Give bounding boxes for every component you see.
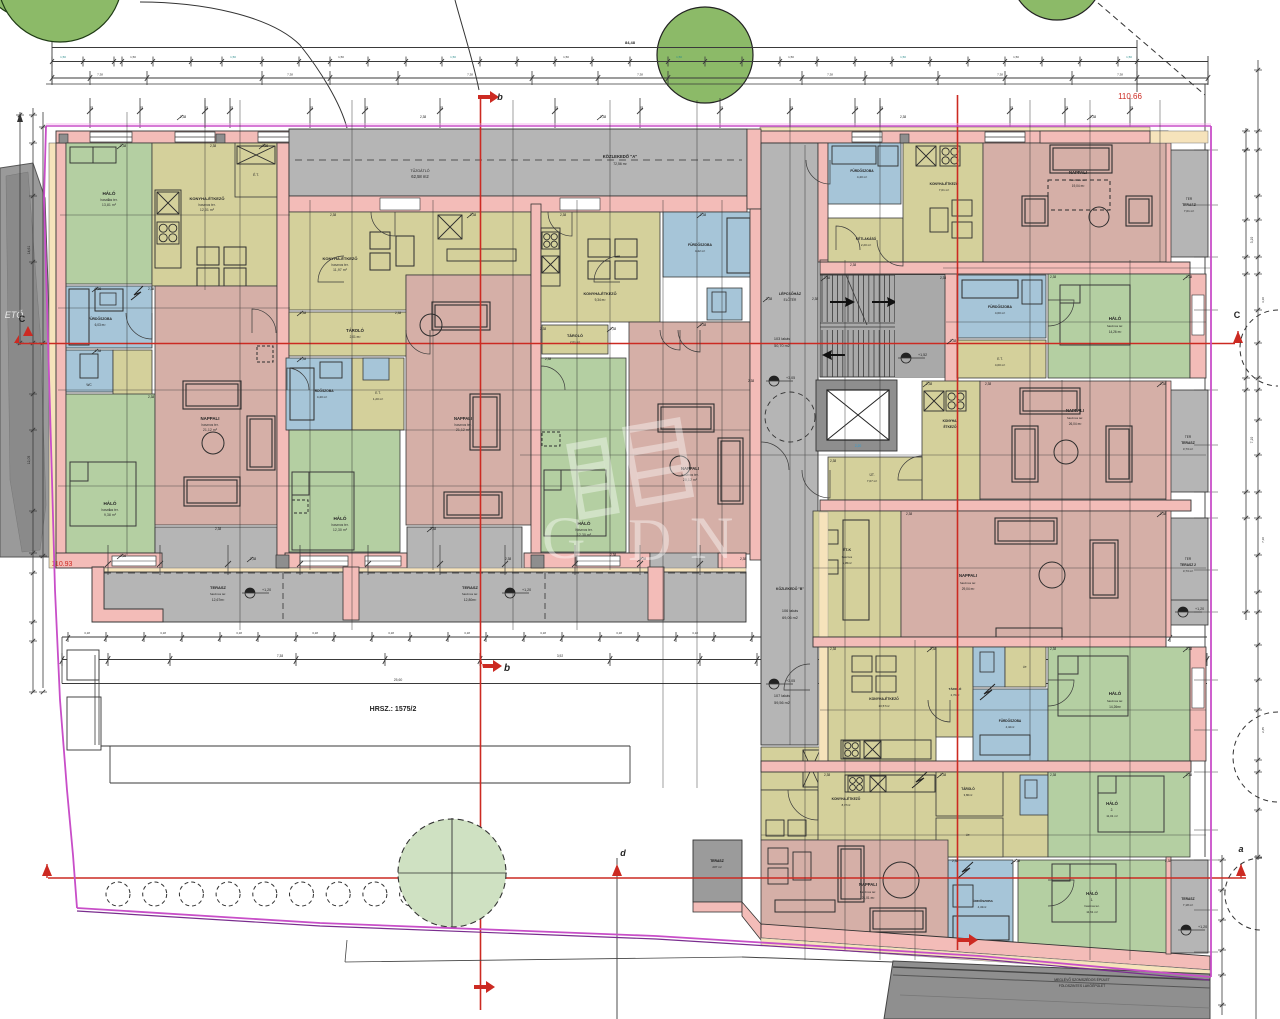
svg-text:KONYHA-: KONYHA- bbox=[943, 419, 958, 423]
svg-text:FÜRDŐSZOBA: FÜRDŐSZOBA bbox=[688, 242, 712, 247]
svg-text:1,50: 1,50 bbox=[130, 55, 136, 59]
svg-text:hasznos ter.: hasznos ter. bbox=[960, 581, 976, 585]
svg-text:hasznos ter.: hasznos ter. bbox=[1107, 699, 1123, 703]
svg-text:TÁROLÓ: TÁROLÓ bbox=[346, 328, 364, 333]
svg-text:a: a bbox=[1238, 844, 1243, 854]
svg-text:1,50: 1,50 bbox=[60, 55, 66, 59]
svg-text:3,18: 3,18 bbox=[388, 631, 394, 635]
svg-text:hasznos ter.: hasznos ter. bbox=[331, 263, 348, 267]
svg-text:2,20: 2,20 bbox=[855, 444, 862, 448]
svg-text:7,38: 7,38 bbox=[827, 73, 833, 77]
svg-text:1.: 1. bbox=[1091, 898, 1094, 902]
svg-text:2,38: 2,38 bbox=[900, 115, 906, 119]
svg-text:+3,05: +3,05 bbox=[786, 376, 795, 380]
svg-text:hasznos ter.: hasznos ter. bbox=[201, 423, 218, 427]
svg-text:TÁROLÓ: TÁROLÓ bbox=[961, 786, 975, 791]
svg-text:12,80m²: 12,80m² bbox=[464, 598, 477, 602]
svg-text:2,20 m²: 2,20 m² bbox=[861, 243, 871, 247]
svg-text:3,18: 3,18 bbox=[692, 631, 698, 635]
svg-text:TŰZGÁTLÓ: TŰZGÁTLÓ bbox=[410, 168, 429, 173]
svg-text:3,18: 3,18 bbox=[312, 631, 318, 635]
svg-text:TERASZ: TERASZ bbox=[462, 585, 479, 590]
svg-text:7,38: 7,38 bbox=[1117, 73, 1123, 77]
svg-text:2,38: 2,38 bbox=[850, 263, 856, 267]
svg-text:2,38: 2,38 bbox=[210, 144, 216, 148]
svg-text:HÁLÓ: HÁLÓ bbox=[1106, 801, 1119, 806]
svg-text:4,00 m²: 4,00 m² bbox=[995, 363, 1005, 367]
svg-text:2,38: 2,38 bbox=[812, 297, 818, 301]
svg-text:KONYHA-ÉTKEZŐ: KONYHA-ÉTKEZŐ bbox=[583, 291, 616, 296]
svg-text:HÁLÓ: HÁLÓ bbox=[333, 514, 346, 521]
svg-text:NAPPALI: NAPPALI bbox=[454, 416, 472, 421]
svg-text:103 lakás: 103 lakás bbox=[774, 337, 790, 341]
svg-text:90: 90 bbox=[880, 106, 884, 110]
svg-text:90: 90 bbox=[230, 106, 234, 110]
svg-text:2,38: 2,38 bbox=[824, 773, 830, 777]
svg-text:hasznos ter.: hasznos ter. bbox=[198, 203, 215, 207]
svg-text:+1,20: +1,20 bbox=[1195, 607, 1204, 611]
svg-text:2.: 2. bbox=[108, 198, 111, 202]
svg-text:4,42m²: 4,42m² bbox=[1006, 725, 1015, 729]
svg-text:21,12 m²: 21,12 m² bbox=[203, 428, 218, 432]
svg-text:90: 90 bbox=[640, 106, 644, 110]
svg-text:C: C bbox=[19, 314, 26, 324]
svg-text:2,38: 2,38 bbox=[395, 311, 401, 315]
svg-text:12,05: 12,05 bbox=[27, 456, 31, 465]
svg-text:2,38: 2,38 bbox=[610, 553, 616, 557]
svg-text:4,43m²: 4,43m² bbox=[978, 905, 987, 909]
svg-text:FÖLDSZINTES LAKÓÉPÜLET: FÖLDSZINTES LAKÓÉPÜLET bbox=[1059, 983, 1106, 988]
svg-text:90: 90 bbox=[720, 106, 724, 110]
svg-text:KÉTLAKÁSÓ: KÉTLAKÁSÓ bbox=[856, 236, 877, 241]
svg-text:1,50: 1,50 bbox=[563, 55, 569, 59]
svg-text:6,03 m²: 6,03 m² bbox=[95, 323, 106, 327]
svg-text:14,26 m²: 14,26 m² bbox=[1109, 330, 1122, 334]
svg-text:FÜRDŐSZOBA: FÜRDŐSZOBA bbox=[850, 168, 874, 173]
svg-text:3,18: 3,18 bbox=[540, 631, 546, 635]
svg-text:TER: TER bbox=[1185, 557, 1192, 561]
svg-text:72,56 m²: 72,56 m² bbox=[613, 162, 627, 166]
svg-text:KONYHA-ÉTKEZŐ: KONYHA-ÉTKEZŐ bbox=[832, 796, 861, 801]
svg-text:E.T.: E.T. bbox=[375, 391, 381, 395]
svg-text:4,60 m²: 4,60 m² bbox=[995, 311, 1005, 315]
svg-text:7,38: 7,38 bbox=[287, 73, 293, 77]
svg-text:hasznos ter.: hasznos ter. bbox=[210, 592, 226, 596]
svg-text:2,38: 2,38 bbox=[148, 287, 154, 291]
svg-text:TÁROLÓ: TÁROLÓ bbox=[949, 686, 962, 691]
svg-text:2,38: 2,38 bbox=[505, 557, 511, 561]
svg-text:11,61 m²: 11,61 m² bbox=[1086, 910, 1098, 914]
svg-text:7,10: 7,10 bbox=[1261, 537, 1265, 543]
svg-text:G: G bbox=[542, 505, 585, 571]
svg-text:ÉTKEZŐ: ÉTKEZŐ bbox=[944, 424, 957, 429]
svg-text:7,01 m²: 7,01 m² bbox=[1184, 209, 1194, 213]
svg-text:1,50: 1,50 bbox=[900, 55, 906, 59]
svg-text:7,01 m²: 7,01 m² bbox=[939, 188, 949, 192]
svg-text:3,18: 3,18 bbox=[84, 631, 90, 635]
svg-text:90: 90 bbox=[140, 106, 144, 110]
svg-text:2,38: 2,38 bbox=[952, 859, 958, 863]
svg-text:D: D bbox=[628, 507, 671, 573]
svg-text:KONYHA-ÉTKEZŐ: KONYHA-ÉTKEZŐ bbox=[930, 181, 959, 186]
svg-text:NAPPALI: NAPPALI bbox=[859, 882, 877, 887]
svg-text:62,58 m2: 62,58 m2 bbox=[411, 174, 429, 179]
svg-text:6,95m²: 6,95m² bbox=[842, 561, 851, 565]
svg-text:1,50: 1,50 bbox=[230, 55, 236, 59]
svg-text:14,61: 14,61 bbox=[27, 246, 31, 255]
svg-text:90: 90 bbox=[555, 106, 559, 110]
svg-text:+1,20: +1,20 bbox=[522, 588, 531, 592]
svg-text:FÜRDŐSZOBA: FÜRDŐSZOBA bbox=[971, 898, 994, 903]
svg-text:2,38: 2,38 bbox=[985, 382, 991, 386]
svg-text:TER: TER bbox=[1185, 435, 1192, 439]
svg-text:3,73 m²: 3,73 m² bbox=[1183, 447, 1193, 451]
svg-text:É.T.: É.T. bbox=[253, 172, 259, 177]
svg-text:4,40 m²: 4,40 m² bbox=[317, 395, 327, 399]
svg-text:ÜT.: ÜT. bbox=[1023, 665, 1028, 669]
svg-text:9,34 m²: 9,34 m² bbox=[595, 298, 606, 302]
svg-text:TERASZ 2: TERASZ 2 bbox=[1180, 563, 1196, 567]
svg-text:110.66: 110.66 bbox=[1118, 92, 1142, 101]
svg-text:HÁLÓ: HÁLÓ bbox=[1086, 891, 1099, 896]
svg-text:KONYHA-ÉTKEZŐ: KONYHA-ÉTKEZŐ bbox=[869, 696, 899, 701]
svg-text:b: b bbox=[504, 663, 510, 674]
svg-text:19,04 m²: 19,04 m² bbox=[1072, 184, 1085, 188]
svg-text:2,38: 2,38 bbox=[540, 327, 546, 331]
svg-text:7,38: 7,38 bbox=[97, 73, 103, 77]
svg-text:hasznos ter.: hasznos ter. bbox=[454, 423, 471, 427]
svg-text:3,18: 3,18 bbox=[236, 631, 242, 635]
svg-text:TERASZ: TERASZ bbox=[710, 859, 724, 863]
svg-text:b: b bbox=[497, 92, 503, 102]
svg-text:11,01 m²: 11,01 m² bbox=[1106, 814, 1118, 818]
svg-text:90: 90 bbox=[1130, 106, 1134, 110]
svg-text:2,38: 2,38 bbox=[1050, 275, 1056, 279]
svg-text:2,01 m²: 2,01 m² bbox=[350, 335, 361, 339]
svg-text:3,80m²: 3,80m² bbox=[964, 793, 973, 797]
svg-text:KONYHA-ÉTKEZŐ: KONYHA-ÉTKEZŐ bbox=[190, 196, 225, 201]
svg-text:59,56 m2: 59,56 m2 bbox=[774, 701, 790, 705]
svg-text:TERASZ: TERASZ bbox=[1182, 203, 1196, 207]
svg-text:2,38: 2,38 bbox=[545, 357, 551, 361]
svg-text:HÁLÓ: HÁLÓ bbox=[1109, 691, 1122, 696]
svg-text:29,04 m²: 29,04 m² bbox=[962, 587, 975, 591]
svg-text:WC: WC bbox=[86, 383, 92, 387]
svg-text:7,07 m²: 7,07 m² bbox=[867, 479, 877, 483]
svg-text:C: C bbox=[1234, 310, 1241, 320]
svg-text:2,38: 2,38 bbox=[830, 459, 836, 463]
svg-text:E.T.: E.T. bbox=[997, 357, 1003, 361]
svg-text:d: d bbox=[620, 848, 626, 858]
svg-text:2,38: 2,38 bbox=[740, 557, 746, 561]
svg-text:7,10: 7,10 bbox=[1250, 437, 1254, 444]
svg-text:50,70 m2: 50,70 m2 bbox=[774, 344, 790, 348]
svg-text:3,18: 3,18 bbox=[160, 631, 166, 635]
svg-text:2,38: 2,38 bbox=[215, 527, 221, 531]
svg-text:HÁLÓ: HÁLÓ bbox=[1109, 316, 1122, 321]
svg-text:2,45: 2,45 bbox=[1261, 727, 1265, 733]
svg-text:2,38: 2,38 bbox=[330, 213, 336, 217]
svg-text:TERASZ: TERASZ bbox=[1181, 441, 1195, 445]
svg-text:1,50: 1,50 bbox=[450, 55, 456, 59]
svg-text:3,18: 3,18 bbox=[464, 631, 470, 635]
svg-text:LÉPCSŐHÁZ: LÉPCSŐHÁZ bbox=[779, 291, 802, 296]
svg-text:3,92: 3,92 bbox=[557, 654, 563, 658]
svg-text:3,18: 3,18 bbox=[616, 631, 622, 635]
svg-text:MEGLÉVŐ SZOMSZÉDOS ÉPÜLET: MEGLÉVŐ SZOMSZÉDOS ÉPÜLET bbox=[1054, 977, 1110, 982]
svg-text:FÜRDŐSZOBA: FÜRDŐSZOBA bbox=[999, 718, 1022, 723]
svg-text:7,38: 7,38 bbox=[997, 73, 1003, 77]
svg-text:hasznos ter.: hasznos ter. bbox=[331, 523, 348, 527]
svg-text:HÁLÓ: HÁLÓ bbox=[103, 499, 116, 506]
svg-text:1,50: 1,50 bbox=[338, 55, 344, 59]
svg-text:HRSZ.: 1575/2: HRSZ.: 1575/2 bbox=[370, 706, 417, 713]
svg-text:hasznos ter.: hasznos ter. bbox=[1107, 324, 1123, 328]
svg-text:2,38: 2,38 bbox=[748, 379, 754, 383]
svg-text:1,20 m²: 1,20 m² bbox=[373, 397, 383, 401]
svg-text:2,38: 2,38 bbox=[148, 395, 154, 399]
svg-text:4,42 m²: 4,42 m² bbox=[695, 249, 705, 253]
svg-text:14,26m²: 14,26m² bbox=[1109, 705, 1121, 709]
svg-text:90: 90 bbox=[310, 106, 314, 110]
svg-text:hasznos ter.: hasznos ter. bbox=[860, 890, 876, 894]
svg-text:+1,20: +1,20 bbox=[262, 588, 271, 592]
svg-text:7,38: 7,38 bbox=[637, 73, 643, 77]
svg-text:3,10: 3,10 bbox=[1261, 297, 1265, 303]
svg-text:KÖZLEKEDŐ "A": KÖZLEKEDŐ "A" bbox=[603, 154, 637, 159]
svg-text:2,38: 2,38 bbox=[420, 115, 426, 119]
svg-text:+1,52: +1,52 bbox=[918, 353, 927, 357]
svg-text:90: 90 bbox=[90, 106, 94, 110]
svg-text:2,38: 2,38 bbox=[1165, 859, 1171, 863]
svg-text:TER: TER bbox=[1186, 197, 1193, 201]
svg-text:20? m²: 20? m² bbox=[712, 865, 721, 869]
svg-text:12,01 m²: 12,01 m² bbox=[200, 208, 215, 212]
svg-text:90: 90 bbox=[365, 106, 369, 110]
svg-text:1,50: 1,50 bbox=[676, 55, 682, 59]
svg-text:7,38: 7,38 bbox=[467, 73, 473, 77]
svg-text:TERASZ: TERASZ bbox=[210, 585, 227, 590]
svg-text:84,48: 84,48 bbox=[625, 40, 636, 45]
svg-text:hasznos ter.: hasznos ter. bbox=[1084, 904, 1099, 908]
svg-text:2,38: 2,38 bbox=[1050, 773, 1056, 777]
svg-text:12,30 m²: 12,30 m² bbox=[333, 528, 348, 532]
svg-text:hasznos ter.: hasznos ter. bbox=[462, 592, 478, 596]
svg-text:2,38: 2,38 bbox=[1050, 647, 1056, 651]
svg-text:TÁROLÓ: TÁROLÓ bbox=[567, 333, 583, 338]
svg-text:hasznos ter.: hasznos ter. bbox=[1067, 416, 1083, 420]
svg-text:90: 90 bbox=[440, 106, 444, 110]
svg-text:90: 90 bbox=[1010, 106, 1014, 110]
svg-text:FÜRDŐSZOBA: FÜRDŐSZOBA bbox=[988, 304, 1012, 309]
svg-text:26,04 m²: 26,04 m² bbox=[1069, 422, 1082, 426]
svg-text:+1,20: +1,20 bbox=[1198, 925, 1207, 929]
svg-text:8,37m²: 8,37m² bbox=[842, 803, 851, 807]
svg-text:NAPPALI: NAPPALI bbox=[959, 573, 977, 578]
svg-text:90: 90 bbox=[205, 106, 209, 110]
svg-text:11,97 m²: 11,97 m² bbox=[333, 268, 348, 272]
svg-text:107 lakás: 107 lakás bbox=[774, 694, 790, 698]
svg-text:2,38: 2,38 bbox=[906, 512, 912, 516]
svg-text:2,38: 2,38 bbox=[940, 276, 946, 280]
svg-text:ÉT-K: ÉT-K bbox=[843, 547, 852, 552]
svg-text:ÜT.: ÜT. bbox=[869, 473, 874, 477]
svg-text:N: N bbox=[690, 505, 733, 571]
svg-text:ELŐTÉR: ELŐTÉR bbox=[784, 297, 797, 302]
svg-text:2,38: 2,38 bbox=[830, 647, 836, 651]
svg-text:1.: 1. bbox=[109, 508, 112, 512]
svg-text:1,50: 1,50 bbox=[1013, 55, 1019, 59]
svg-text:25,60: 25,60 bbox=[394, 678, 403, 682]
svg-text:FÜRDŐSZOBA: FÜRDŐSZOBA bbox=[88, 316, 112, 321]
svg-text:HÁLÓ: HÁLÓ bbox=[102, 189, 115, 196]
svg-text:TERASZ: TERASZ bbox=[1181, 897, 1194, 901]
svg-text:90: 90 bbox=[1065, 106, 1069, 110]
svg-text:90: 90 bbox=[790, 106, 794, 110]
svg-text:4,40 m²: 4,40 m² bbox=[857, 175, 867, 179]
svg-text:90: 90 bbox=[855, 106, 859, 110]
svg-text:1,50: 1,50 bbox=[788, 55, 794, 59]
svg-text:+3,05: +3,05 bbox=[786, 679, 795, 683]
svg-text:2,38: 2,38 bbox=[560, 213, 566, 217]
svg-text:NAPPALI: NAPPALI bbox=[201, 416, 220, 421]
svg-text:13,81 m²: 13,81 m² bbox=[102, 203, 117, 207]
svg-text:3,73 m²: 3,73 m² bbox=[1183, 569, 1193, 573]
svg-text:7,18 m²: 7,18 m² bbox=[1183, 903, 1193, 907]
svg-text:9,38 m²: 9,38 m² bbox=[104, 513, 117, 517]
svg-text:3,10: 3,10 bbox=[1250, 237, 1254, 244]
svg-text:2.: 2. bbox=[1111, 808, 1114, 812]
svg-text:7,38: 7,38 bbox=[277, 654, 283, 658]
svg-text:12,67m²: 12,67m² bbox=[212, 598, 225, 602]
svg-text:1,50: 1,50 bbox=[1126, 55, 1132, 59]
